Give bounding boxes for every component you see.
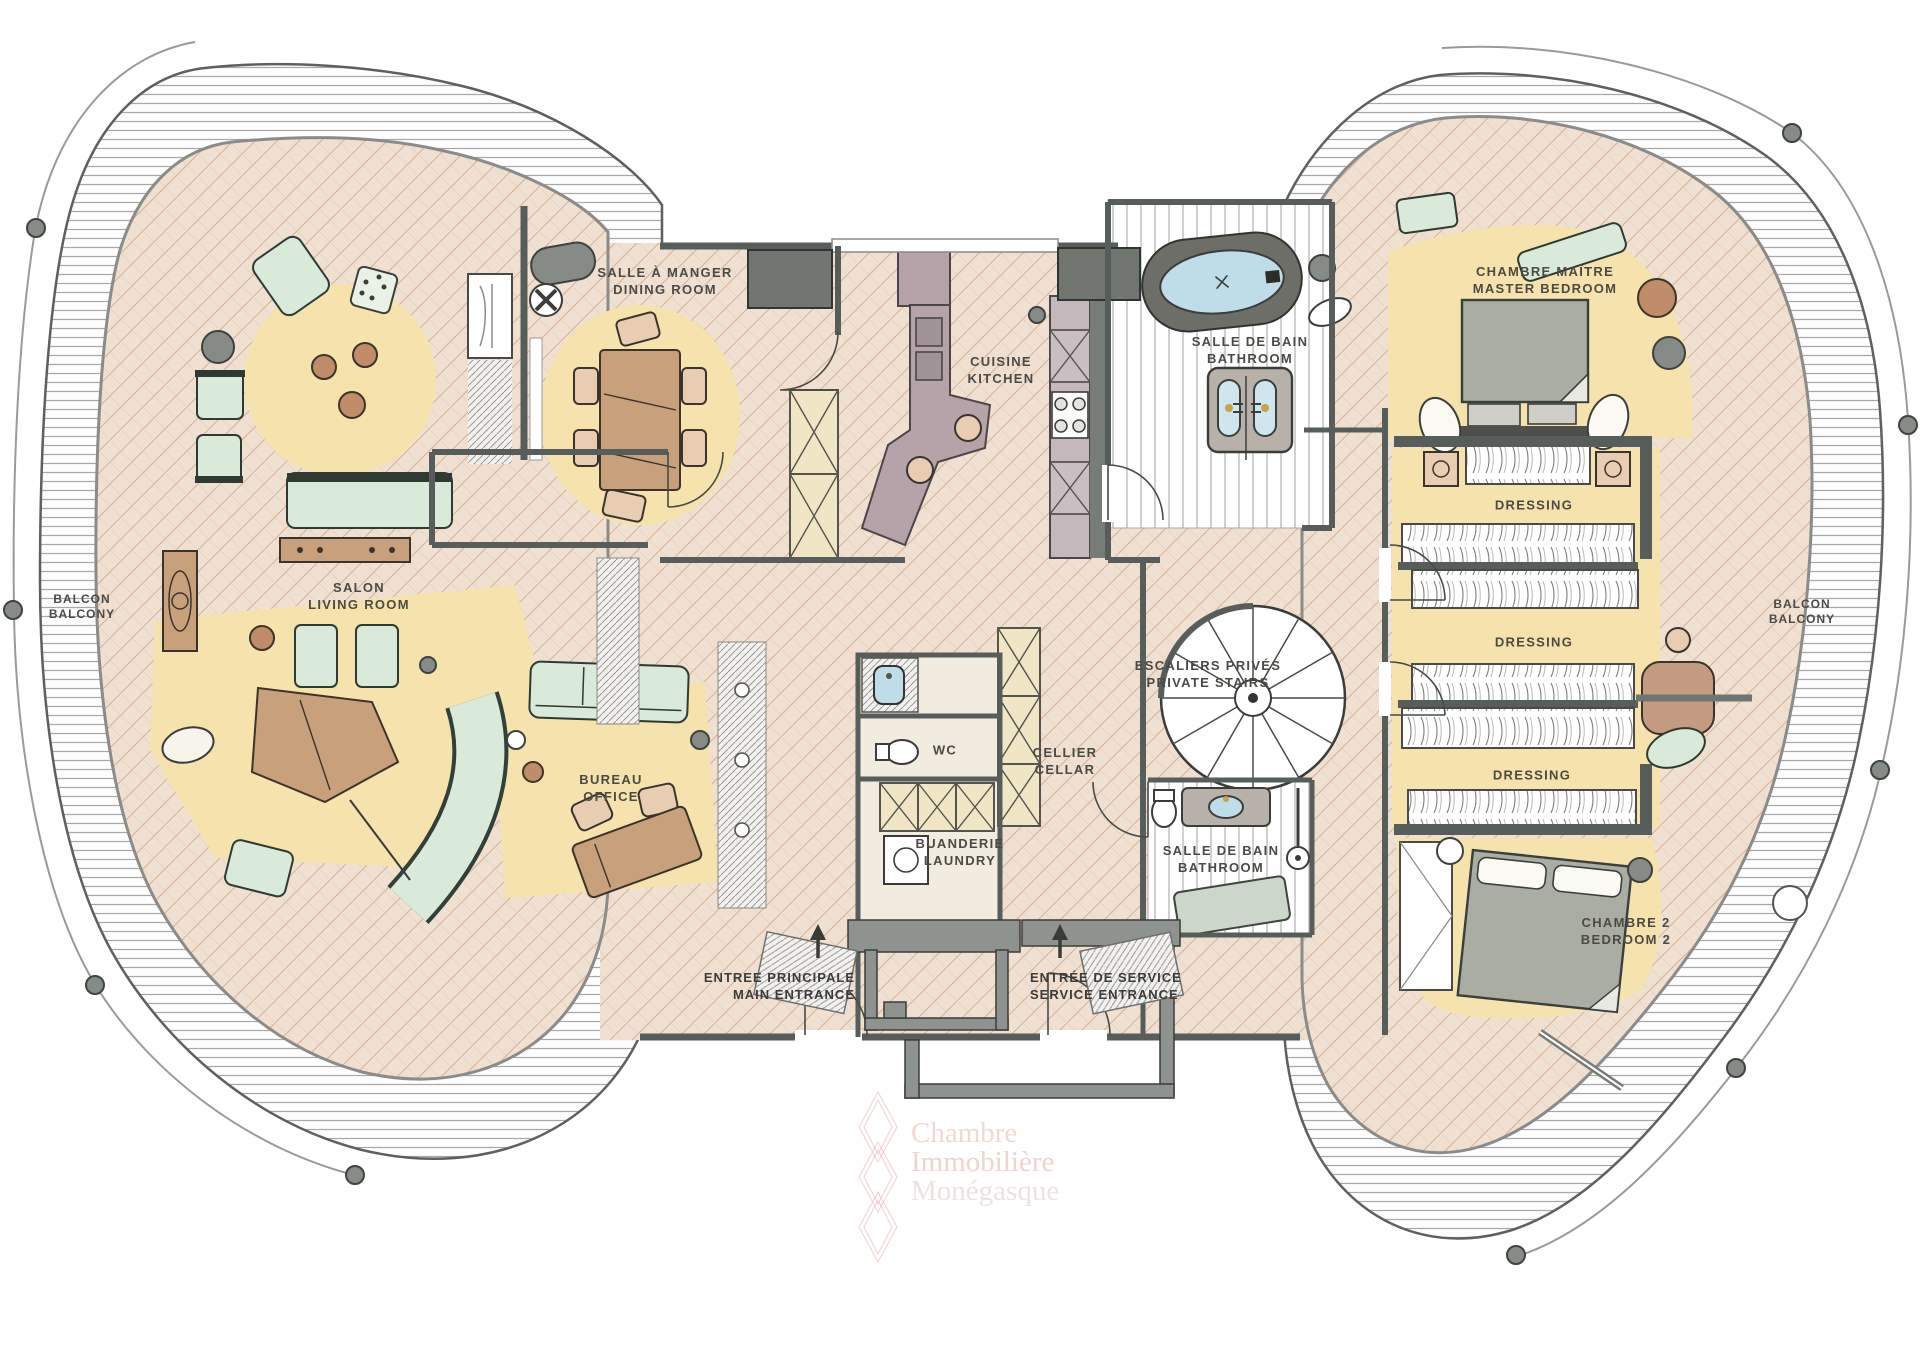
label-fr: CHAMBRE 2 (1581, 914, 1671, 931)
room-label-bathroom-main: SALLE DE BAIN BATHROOM (1192, 333, 1309, 367)
label-en: OFFICE (579, 788, 642, 805)
label-en: LAUNDRY (916, 852, 1005, 869)
watermark-line-1: Chambre (911, 1119, 1059, 1148)
label-fr: SALON (308, 579, 410, 596)
floor-plan-page: SALLE À MANGER DINING ROOM CUISINE KITCH… (0, 0, 1920, 1359)
dressing-label-3: DRESSING (1493, 767, 1571, 784)
dressing-label-1: DRESSING (1495, 497, 1573, 514)
watermark-logo (859, 1092, 897, 1262)
watermark-text: Chambre Immobilière Monégasque (911, 1119, 1059, 1206)
label-fr: CHAMBRE MAÎTRE (1473, 263, 1618, 280)
label-en: CELLAR (1033, 761, 1098, 778)
room-label-cellar: CELLIER CELLAR (1033, 744, 1098, 778)
watermark-line-2: Immobilière (911, 1148, 1059, 1177)
label-en: BEDROOM 2 (1581, 931, 1671, 948)
balcony-label-left: BALCON BALCONY (49, 592, 115, 622)
label-en: BATHROOM (1163, 859, 1280, 876)
label-fr: BUANDERIE (916, 835, 1005, 852)
service-entrance-label: ENTRÉE DE SERVICE SERVICE ENTRANCE (1030, 969, 1182, 1003)
label-en: BALCONY (49, 607, 115, 622)
label-fr: SALLE DE BAIN (1192, 333, 1309, 350)
label-en: BALCONY (1769, 612, 1835, 627)
room-label-bedroom-2: CHAMBRE 2 BEDROOM 2 (1581, 914, 1671, 948)
label-fr: SALLE DE BAIN (1163, 842, 1280, 859)
label-en: SERVICE ENTRANCE (1030, 986, 1182, 1003)
room-label-private-stairs: ESCALIERS PRIVÉS PRIVATE STAIRS (1135, 657, 1282, 691)
label-en: MASTER BEDROOM (1473, 280, 1618, 297)
wc-label: WC (933, 742, 957, 759)
label-en: MAIN ENTRANCE (704, 986, 855, 1003)
label-fr: BUREAU (579, 771, 642, 788)
room-label-office: BUREAU OFFICE (579, 771, 642, 805)
label-fr: CUISINE (968, 353, 1035, 370)
label-en: DINING ROOM (597, 281, 732, 298)
main-entrance-label: ENTREE PRINCIPALE MAIN ENTRANCE (704, 969, 855, 1003)
label-en: BATHROOM (1192, 350, 1309, 367)
label-fr: BALCON (49, 592, 115, 607)
room-label-dining: SALLE À MANGER DINING ROOM (597, 264, 732, 298)
label-en: KITCHEN (968, 370, 1035, 387)
room-label-kitchen: CUISINE KITCHEN (968, 353, 1035, 387)
label-fr: ESCALIERS PRIVÉS (1135, 657, 1282, 674)
label-fr: BALCON (1769, 597, 1835, 612)
label-en: LIVING ROOM (308, 596, 410, 613)
spiral-staircase (1161, 606, 1345, 790)
cellar-cabinets (998, 628, 1040, 826)
label-fr: ENTRÉE DE SERVICE (1030, 969, 1182, 986)
balcony-label-right: BALCON BALCONY (1769, 597, 1835, 627)
label-fr: ENTREE PRINCIPALE (704, 969, 855, 986)
room-label-laundry: BUANDERIE LAUNDRY (916, 835, 1005, 869)
label-fr: SALLE À MANGER (597, 264, 732, 281)
label-fr: CELLIER (1033, 744, 1098, 761)
room-label-master-bedroom: CHAMBRE MAÎTRE MASTER BEDROOM (1473, 263, 1618, 297)
room-label-living-room: SALON LIVING ROOM (308, 579, 410, 613)
double-sink-vanity (1208, 368, 1292, 460)
dressing-label-2: DRESSING (1495, 634, 1573, 651)
room-label-bathroom-2: SALLE DE BAIN BATHROOM (1163, 842, 1280, 876)
label-en: PRIVATE STAIRS (1135, 674, 1282, 691)
watermark-line-3: Monégasque (911, 1177, 1059, 1206)
